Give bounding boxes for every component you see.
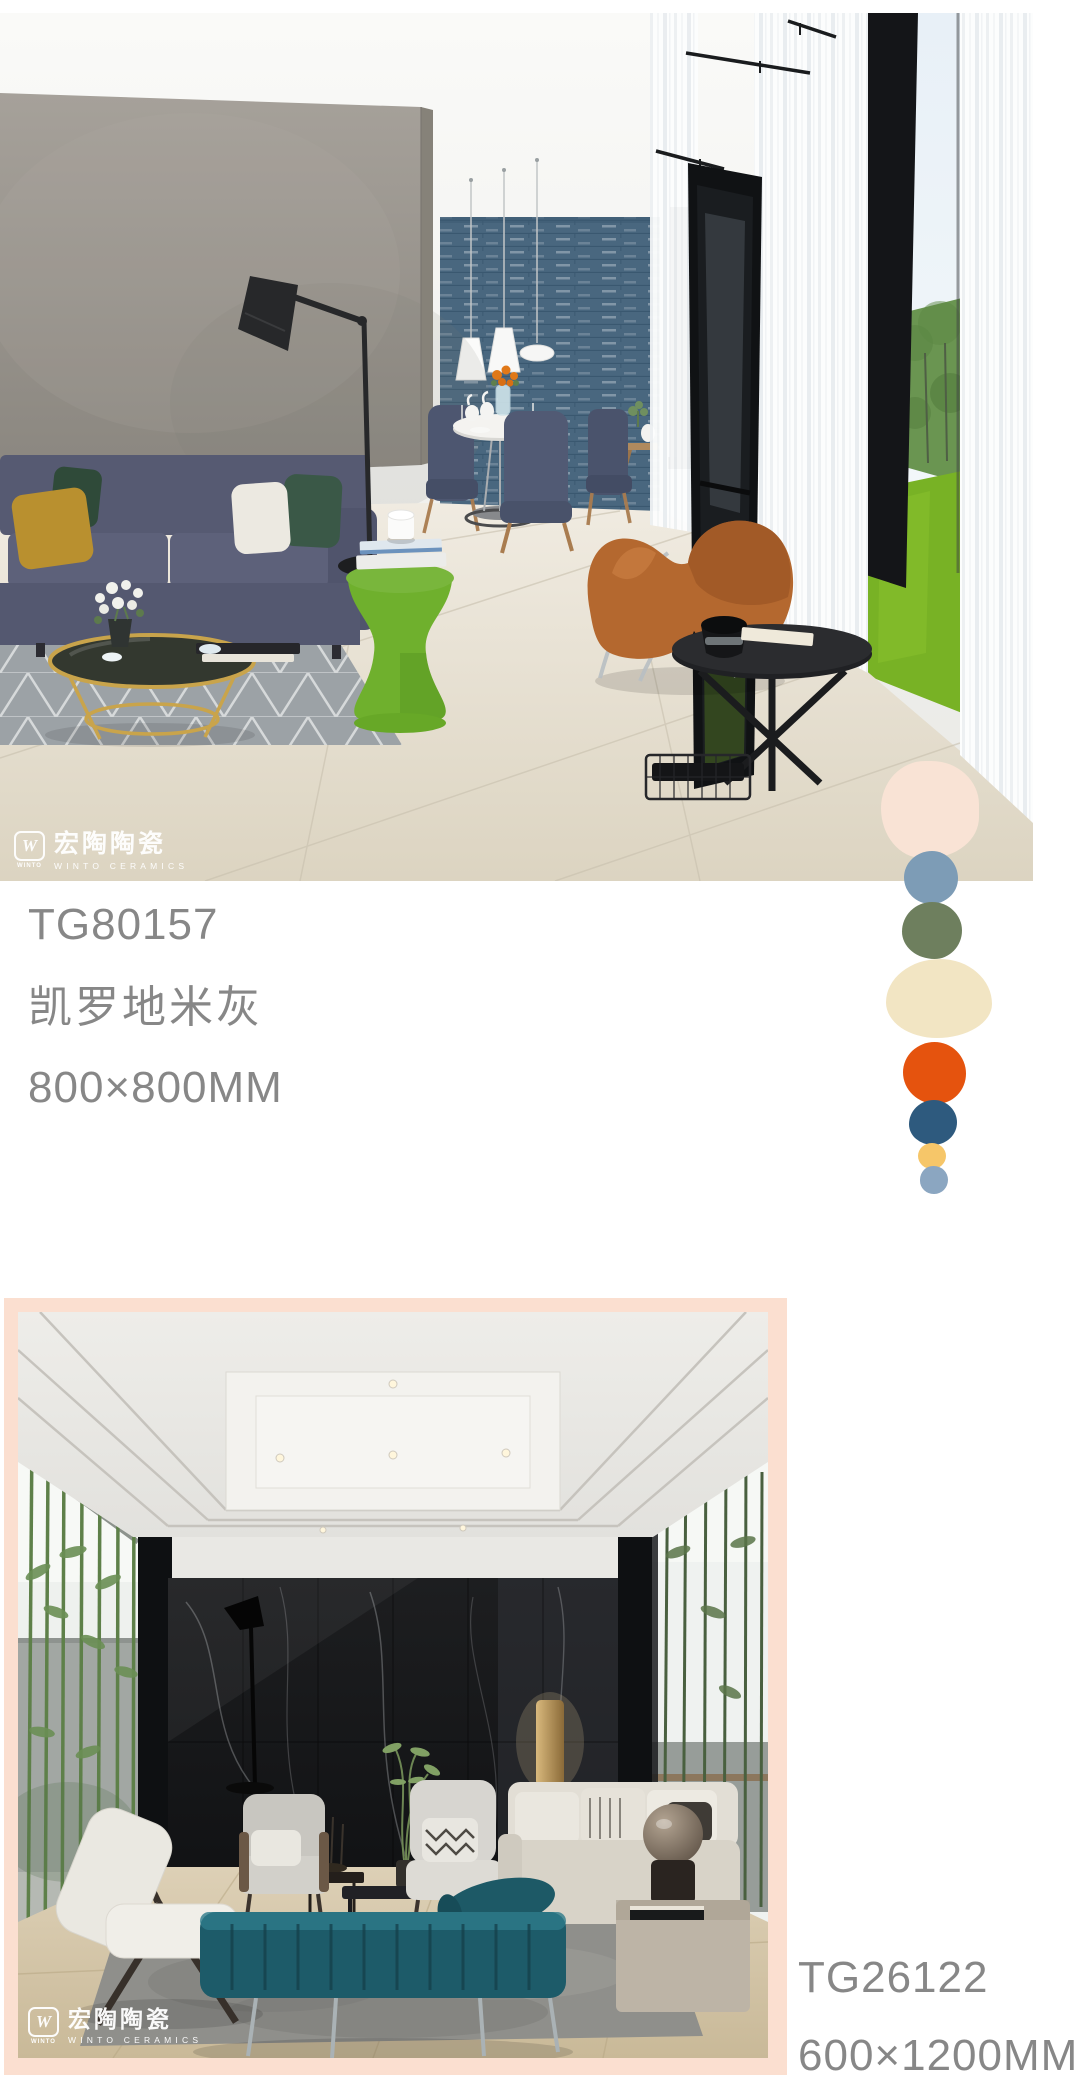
catalog-page: W WINTO 宏陶陶瓷 WINTO CERAMICS TG80157 凯罗地米… xyxy=(0,0,1080,2082)
product-2-size: 600×1200MM xyxy=(798,2032,1078,2080)
gold-sconce xyxy=(516,1692,584,1792)
palette-dot-navy xyxy=(909,1100,957,1145)
brand-name-zh: 宏陶陶瓷 xyxy=(68,2007,202,2031)
winto-logo-mark-icon: W WINTO xyxy=(14,831,45,870)
product-2-photo: W WINTO 宏陶陶瓷 WINTO CERAMICS xyxy=(18,1312,768,2058)
palette-dot-yellow xyxy=(918,1143,946,1169)
brand-name-zh: 宏陶陶瓷 xyxy=(54,831,188,857)
palette-dot-orange xyxy=(903,1042,966,1104)
winto-logo-mark-icon: W WINTO xyxy=(28,2007,59,2046)
sofa xyxy=(0,455,377,659)
brand-name-en: WINTO CERAMICS xyxy=(68,2035,202,2045)
product-1-code: TG80157 xyxy=(28,901,218,949)
logo-mark-caption: WINTO xyxy=(31,2039,56,2046)
brand-name-en: WINTO CERAMICS xyxy=(54,861,188,871)
winto-logo: W WINTO 宏陶陶瓷 WINTO CERAMICS xyxy=(14,831,188,871)
palette-dot-cream xyxy=(886,959,992,1038)
logo-mark-caption: WINTO xyxy=(17,863,42,870)
palette-dot-olive-green xyxy=(902,902,962,959)
product-1-size: 800×800MM xyxy=(28,1064,283,1112)
product-1-photo: W WINTO 宏陶陶瓷 WINTO CERAMICS xyxy=(0,13,1033,881)
logo-letter: W xyxy=(22,836,37,856)
lounge-scene xyxy=(18,1312,768,2058)
product-2-frame: W WINTO 宏陶陶瓷 WINTO CERAMICS xyxy=(4,1298,787,2075)
palette-dot-light-blue xyxy=(920,1166,948,1194)
bowl xyxy=(701,616,747,658)
logo-letter: W xyxy=(36,2012,51,2032)
product-1-name: 凯罗地米灰 xyxy=(28,984,263,1032)
product-2-code: TG26122 xyxy=(798,1954,988,2002)
coffered-ceiling xyxy=(18,1312,768,1537)
winto-logo: W WINTO 宏陶陶瓷 WINTO CERAMICS xyxy=(28,2007,202,2046)
living-room-scene xyxy=(0,13,1033,881)
